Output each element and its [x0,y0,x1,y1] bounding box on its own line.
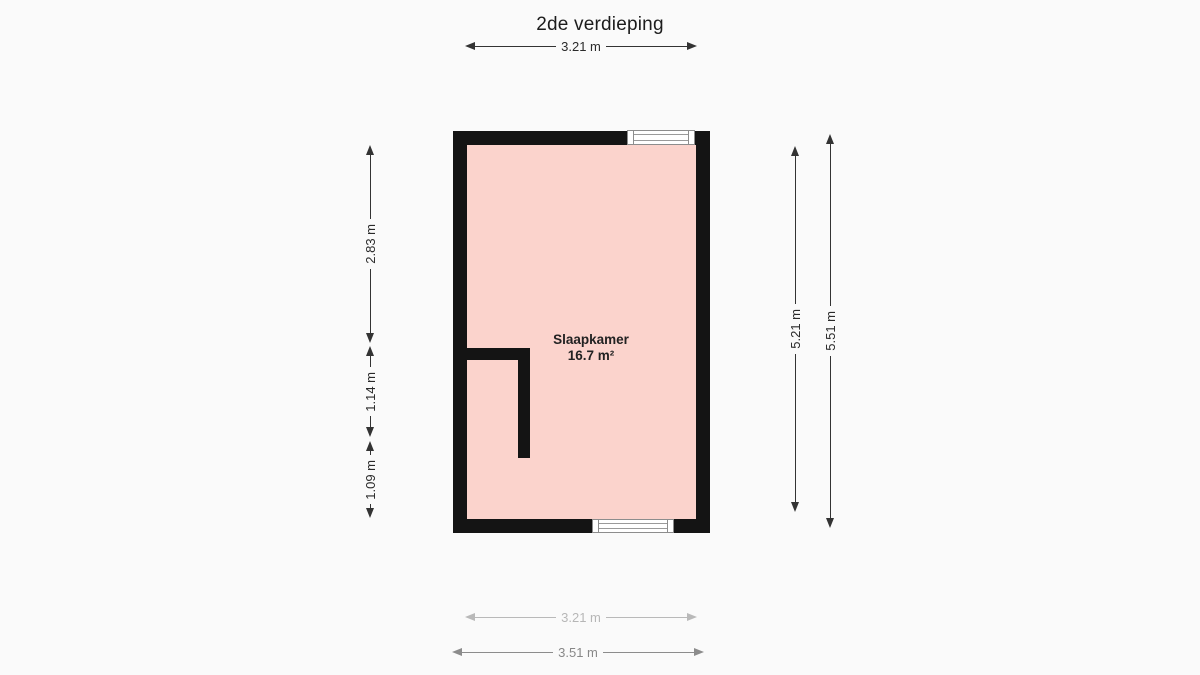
arrow-right-icon [694,648,704,656]
arrow-left-icon [452,648,462,656]
dimension-left-lower: 1.09 m [362,441,378,518]
dimension-label: 5.21 m [788,304,803,354]
arrow-up-icon [366,346,374,356]
window-glazing [634,134,688,141]
arrow-left-icon [465,613,475,621]
arrow-down-icon [366,508,374,518]
dimension-label: 1.14 m [363,367,378,417]
dimension-left-middle: 1.14 m [362,346,378,437]
arrow-up-icon [366,441,374,451]
dimension-line [603,652,694,653]
arrow-down-icon [366,427,374,437]
window-bottom [592,519,674,533]
dimension-line [370,356,371,367]
dimension-line [475,46,556,47]
dimension-bottom-outer: 3.51 m [452,644,704,660]
window-jamb [667,520,668,532]
dimension-line [370,416,371,427]
window-top [627,130,695,145]
floorplan-canvas: 2de verdieping 3.21 m Slaapkamer 16.7 m²… [0,0,1200,675]
arrow-up-icon [366,145,374,155]
arrow-up-icon [826,134,834,144]
dimension-top-width: 3.21 m [465,38,697,54]
room-label: Slaapkamer 16.7 m² [553,332,629,364]
arrow-right-icon [687,613,697,621]
dimension-right-outer: 5.51 m [822,134,838,528]
dimension-line [830,356,831,518]
arrow-left-icon [465,42,475,50]
dimension-line [830,144,831,306]
dimension-bottom-inner: 3.21 m [465,609,697,625]
room-name: Slaapkamer [553,332,629,348]
window-jamb [688,131,689,144]
dimension-label: 1.09 m [363,455,378,505]
interior-wall-vertical [518,348,530,458]
dimension-label: 3.21 m [556,610,606,625]
arrow-down-icon [791,502,799,512]
arrow-right-icon [687,42,697,50]
dimension-line [795,354,796,502]
room-area: 16.7 m² [553,348,629,364]
dimension-line [462,652,553,653]
floor-title: 2de verdieping [0,14,1200,36]
dimension-line [795,156,796,304]
dimension-line [475,617,556,618]
dimension-line [606,617,687,618]
arrow-down-icon [826,518,834,528]
dimension-line [606,46,687,47]
dimension-line [370,269,371,333]
window-glazing [599,523,667,529]
dimension-label: 3.21 m [556,39,606,54]
dimension-line [370,155,371,219]
dimension-left-upper: 2.83 m [362,145,378,343]
dimension-right-inner: 5.21 m [787,146,803,512]
dimension-label: 2.83 m [363,219,378,269]
dimension-label: 5.51 m [823,306,838,356]
arrow-up-icon [791,146,799,156]
dimension-label: 3.51 m [553,645,603,660]
arrow-down-icon [366,333,374,343]
